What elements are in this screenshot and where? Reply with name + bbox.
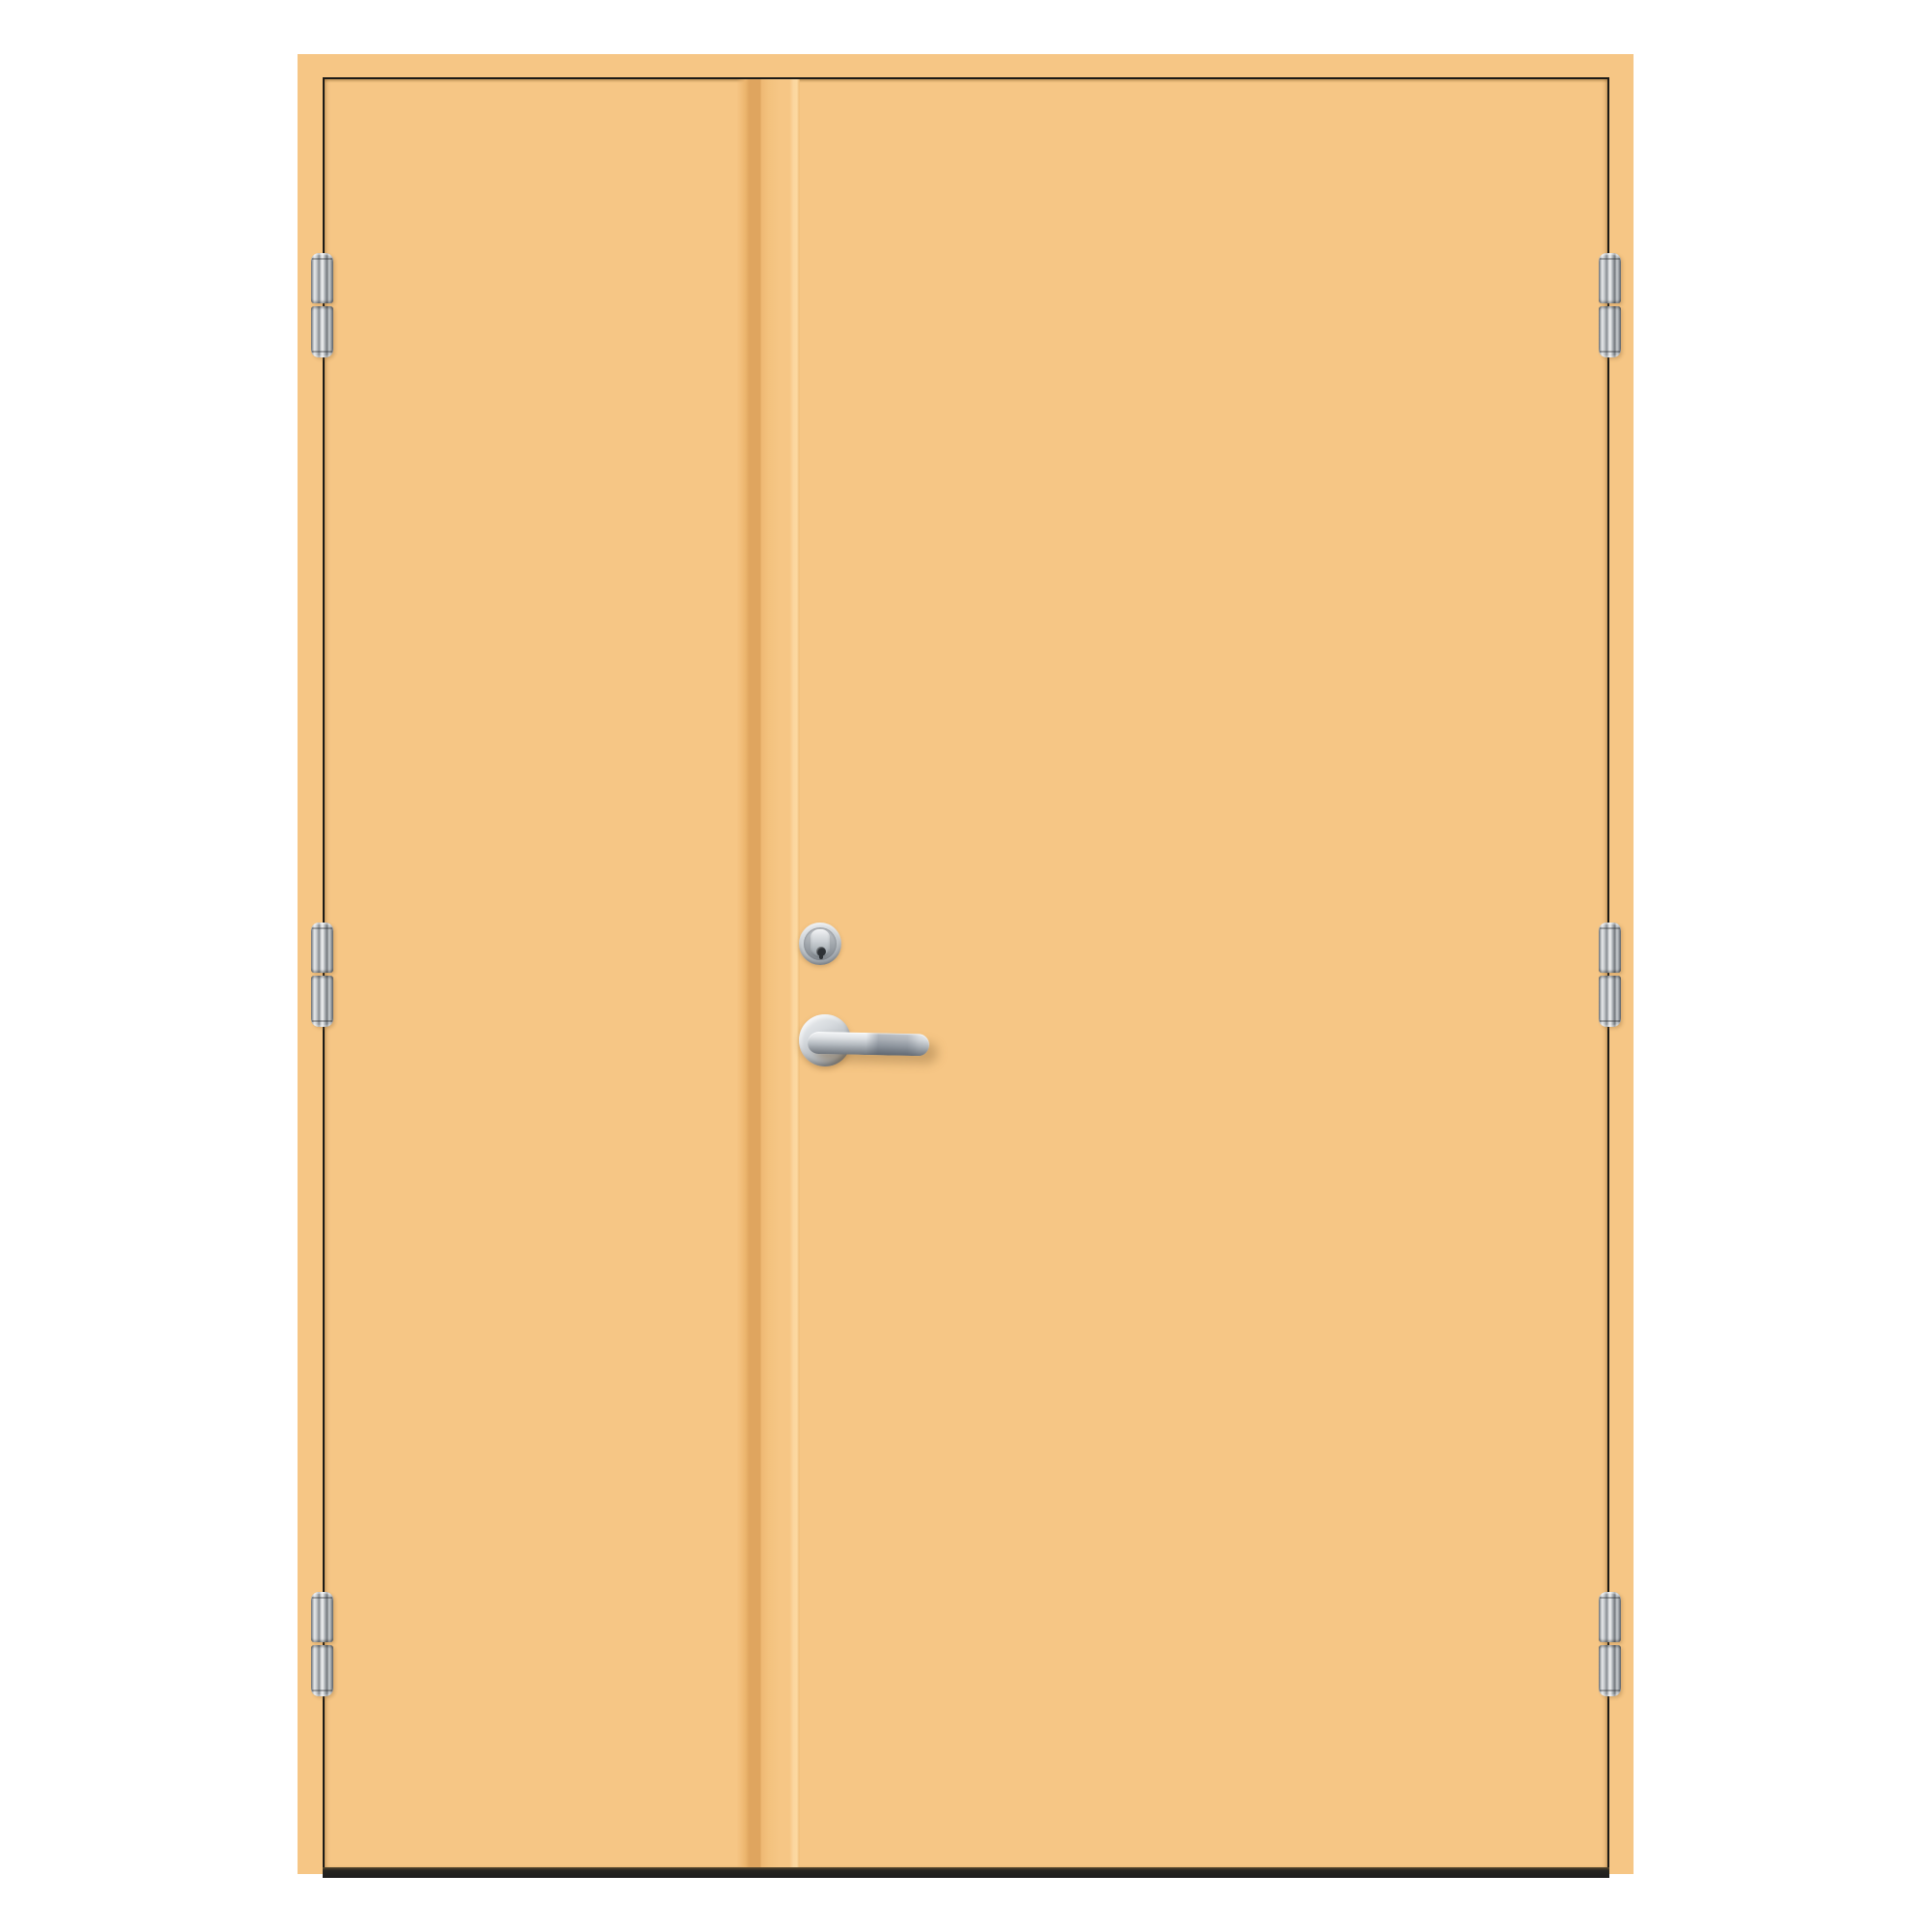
hinge-barrel [311, 923, 333, 973]
hinge-left-top [311, 253, 333, 357]
hinge-barrel [311, 306, 333, 357]
keyhole-slot [819, 953, 823, 959]
hinge-barrel [1599, 976, 1621, 1027]
hinge-right-top [1599, 253, 1621, 357]
left-door-leaf [325, 79, 750, 1865]
hinge-barrel [1599, 1645, 1621, 1696]
hinge-barrel [311, 1645, 333, 1696]
hinge-barrel [1599, 1592, 1621, 1642]
hinge-barrel [311, 1592, 333, 1642]
hinge-right-bottom [1599, 1592, 1621, 1696]
hinge-left-middle [311, 923, 333, 1027]
hinge-barrel [311, 976, 333, 1027]
meeting-stile-seam [726, 79, 800, 1867]
right-door-leaf [750, 79, 1607, 1865]
hinge-barrel [1599, 306, 1621, 357]
hinge-barrel [1599, 923, 1621, 973]
lock-cylinder [799, 923, 841, 965]
hinge-left-bottom [311, 1592, 333, 1696]
threshold-strip [323, 1867, 1609, 1878]
hinge-barrel [1599, 253, 1621, 303]
product-image-canvas [0, 0, 1932, 1932]
hinge-barrel [311, 253, 333, 303]
hinge-right-middle [1599, 923, 1621, 1027]
